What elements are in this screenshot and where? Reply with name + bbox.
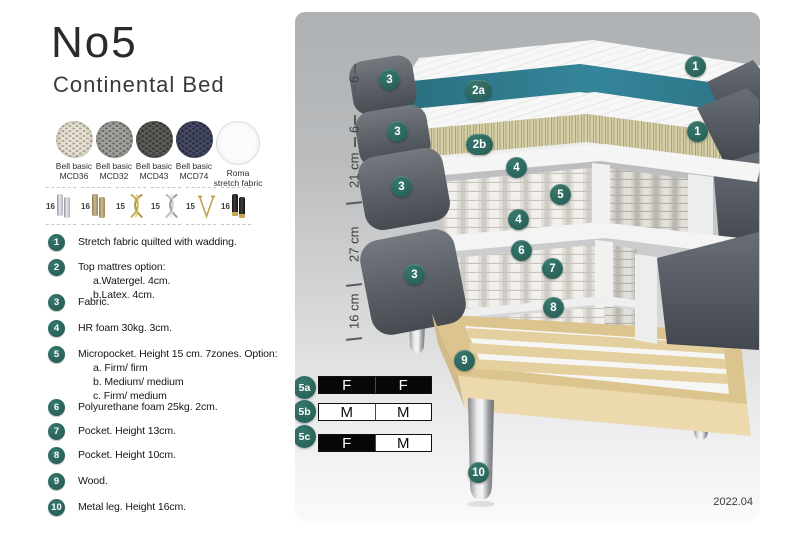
callout-badge: 4 (508, 209, 529, 230)
black-leg-icon (232, 194, 245, 218)
fabric-name: Roma (227, 168, 250, 178)
fabric-swatch: Bell basicMCD32 (94, 121, 134, 181)
silver-twisted-leg-icon (162, 192, 181, 220)
feature-number-badge: 6 (48, 399, 65, 416)
base-right-fabric (657, 232, 759, 350)
leg-height-label: 15 (151, 202, 160, 211)
chrome-leg-icon (57, 194, 70, 218)
fabric-code: stretch fabric (214, 178, 263, 188)
feature-item: 10 Metal leg. Height 16cm. (48, 499, 186, 516)
gold-twisted-leg-icon (127, 192, 146, 220)
callout-badge: 9 (454, 350, 475, 371)
feature-number-badge: 1 (48, 234, 65, 251)
firmness-cell: F (319, 435, 376, 451)
fabric-swatch-label: Bell basicMCD36 (56, 162, 92, 181)
bronze-leg-icon (92, 194, 105, 218)
ruler-tick (354, 137, 356, 147)
feature-item: 4 HR foam 30kg. 3cm. (48, 320, 172, 337)
feature-subtext: a.Watergel. 4cm. (78, 274, 170, 288)
callout-badge: 2a (465, 80, 492, 101)
dimension-label: 16 cm (345, 289, 363, 333)
firmness-cell: M (376, 435, 432, 451)
leg-height-label: 16 (81, 202, 90, 211)
feature-number-badge: 2 (48, 259, 65, 276)
fabric-name: Bell basic (96, 161, 132, 171)
fabric-name: Bell basic (176, 161, 212, 171)
fabric-name: Bell basic (56, 161, 92, 171)
leg-option: 15 (116, 187, 146, 225)
fabric-swatch-row: Bell basicMCD36 Bell basicMCD32 Bell bas… (54, 121, 262, 188)
feature-text: Wood. (78, 474, 108, 488)
fabric-swatch: Bell basicMCD36 (54, 121, 94, 181)
feature-text: Pocket. Height 10cm. (78, 448, 176, 462)
firmness-cell: M (319, 404, 376, 420)
callout-badge: 3 (379, 69, 400, 90)
fabric-swatch-image (136, 121, 173, 158)
feature-text: Stretch fabric quilted with wadding. (78, 235, 237, 249)
page-subtitle: Continental Bed (53, 72, 225, 98)
callout-badge: 3 (391, 176, 412, 197)
callout-badge: 1 (687, 121, 708, 142)
dimension-label: 27 cm (345, 222, 363, 266)
hairpin-leg-icon (197, 192, 216, 220)
leg-height-label: 16 (46, 202, 55, 211)
feature-text: Pocket. Height 13cm. (78, 424, 176, 438)
fabric-swatch-label: Bell basicMCD43 (136, 162, 172, 181)
firmness-cell: M (376, 404, 432, 420)
leg-height-label: 15 (116, 202, 125, 211)
fabric-swatch-image (96, 121, 133, 158)
leg-option: 16 (81, 187, 111, 225)
feature-text: Micropocket. Height 15 cm. 7zones. Optio… (78, 347, 277, 361)
firmness-row: M M (318, 403, 432, 421)
leg-option: 15 (186, 187, 216, 225)
fabric-swatch-image (56, 121, 93, 158)
dimension-label: 6 (345, 119, 363, 139)
leg-height-label: 16 (221, 202, 230, 211)
feature-number-badge: 8 (48, 447, 65, 464)
ruler-tick (354, 85, 356, 95)
version-label: 2022.04 (713, 496, 753, 508)
feature-number-badge: 9 (48, 473, 65, 490)
feature-item: 8 Pocket. Height 10cm. (48, 447, 176, 464)
fabric-swatch-label: Bell basicMCD74 (176, 162, 212, 181)
feature-number-badge: 4 (48, 320, 65, 337)
fabric-swatch-image (176, 121, 213, 158)
feature-number-badge: 3 (48, 294, 65, 311)
leg-height-label: 15 (186, 202, 195, 211)
leg-options-row: 16 16 15 15 15 16 (46, 187, 251, 225)
feature-text: Top mattres option: (78, 260, 170, 274)
base-corner-post (635, 254, 657, 344)
fabric-swatch: Bell basicMCD43 (134, 121, 174, 181)
feature-number-badge: 10 (48, 499, 65, 516)
callout-badge: 3 (404, 264, 425, 285)
callout-badge: 3 (387, 121, 408, 142)
callout-badge: 10 (468, 462, 489, 483)
fabric-swatch: Romastretch fabric (214, 121, 262, 188)
feature-item: 1 Stretch fabric quilted with wadding. (48, 234, 237, 251)
fabric-name: Bell basic (136, 161, 172, 171)
leg-option: 16 (46, 187, 76, 225)
callout-badge: 4 (506, 157, 527, 178)
feature-text: Polyurethane foam 25kg. 2cm. (78, 400, 218, 414)
feature-item: 7 Pocket. Height 13cm. (48, 423, 176, 440)
fabric-swatch-label: Romastretch fabric (214, 169, 263, 188)
callout-badge: 1 (685, 56, 706, 77)
fabric-code: MCD32 (100, 171, 129, 181)
fabric-code: MCD43 (140, 171, 169, 181)
feature-text: Fabric. (78, 295, 109, 309)
callout-badge: 7 (542, 258, 563, 279)
callout-badge: 6 (511, 240, 532, 261)
firmness-row: F M (318, 434, 432, 452)
fabric-code: MCD74 (180, 171, 209, 181)
feature-item: 5 Micropocket. Height 15 cm. 7zones. Opt… (48, 346, 277, 403)
feature-text: Metal leg. Height 16cm. (78, 500, 186, 514)
feature-text: HR foam 30kg. 3cm. (78, 321, 172, 335)
fabric-code: MCD36 (60, 171, 89, 181)
feature-number-badge: 7 (48, 423, 65, 440)
leg-option: 15 (151, 187, 181, 225)
feature-item: 9 Wood. (48, 473, 108, 490)
fabric-swatch-image (216, 121, 260, 165)
feature-subtext: a. Firm/ firm (78, 361, 277, 375)
feature-subtext: b. Medium/ medium (78, 375, 277, 389)
callout-badge: 2b (466, 134, 493, 155)
front-metal-leg (467, 398, 495, 507)
fabric-swatch-label: Bell basicMCD32 (96, 162, 132, 181)
firmness-cell: F (376, 377, 432, 393)
callout-badge: 8 (543, 297, 564, 318)
page-title: No5 (51, 18, 138, 68)
firmness-row: F F (318, 376, 432, 394)
leg-option: 16 (221, 187, 251, 225)
feature-item: 6 Polyurethane foam 25kg. 2cm. (48, 399, 218, 416)
bed-diagram-panel: 6 6 21 cm 27 cm 16 cm 1 3 2a 3 2b 1 4 5 … (295, 12, 760, 521)
firmness-cell: F (319, 377, 376, 393)
feature-item: 3 Fabric. (48, 294, 109, 311)
fabric-swatch: Bell basicMCD74 (174, 121, 214, 181)
dimension-label: 21 cm (345, 148, 363, 192)
feature-number-badge: 5 (48, 346, 65, 363)
callout-badge: 5 (550, 184, 571, 205)
